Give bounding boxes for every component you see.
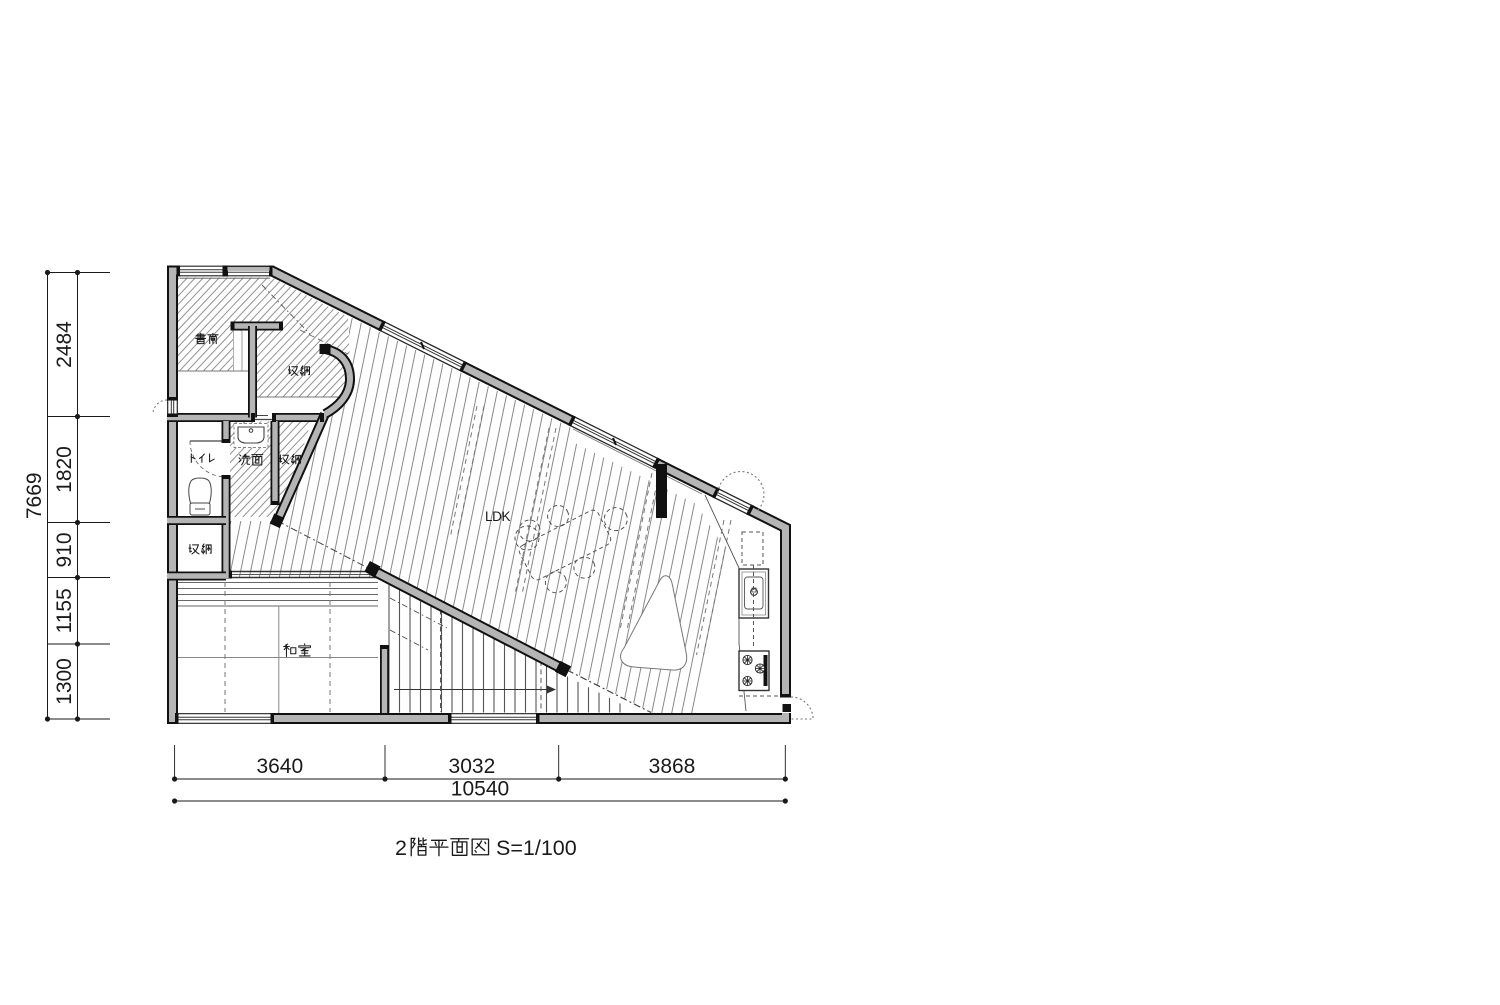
svg-text:S=1/100: S=1/100	[496, 836, 577, 860]
svg-text:10540: 10540	[451, 778, 509, 801]
svg-text:1155: 1155	[53, 588, 76, 633]
svg-text:2484: 2484	[53, 321, 76, 368]
svg-text:910: 910	[53, 532, 76, 567]
svg-text:3640: 3640	[256, 755, 303, 778]
svg-text:3868: 3868	[649, 755, 696, 778]
svg-text:3032: 3032	[449, 755, 496, 778]
svg-text:LDK: LDK	[485, 509, 510, 524]
svg-text:1820: 1820	[53, 446, 76, 493]
svg-text:7669: 7669	[23, 472, 46, 519]
svg-text:1300: 1300	[53, 658, 76, 705]
svg-text:2: 2	[395, 836, 407, 860]
